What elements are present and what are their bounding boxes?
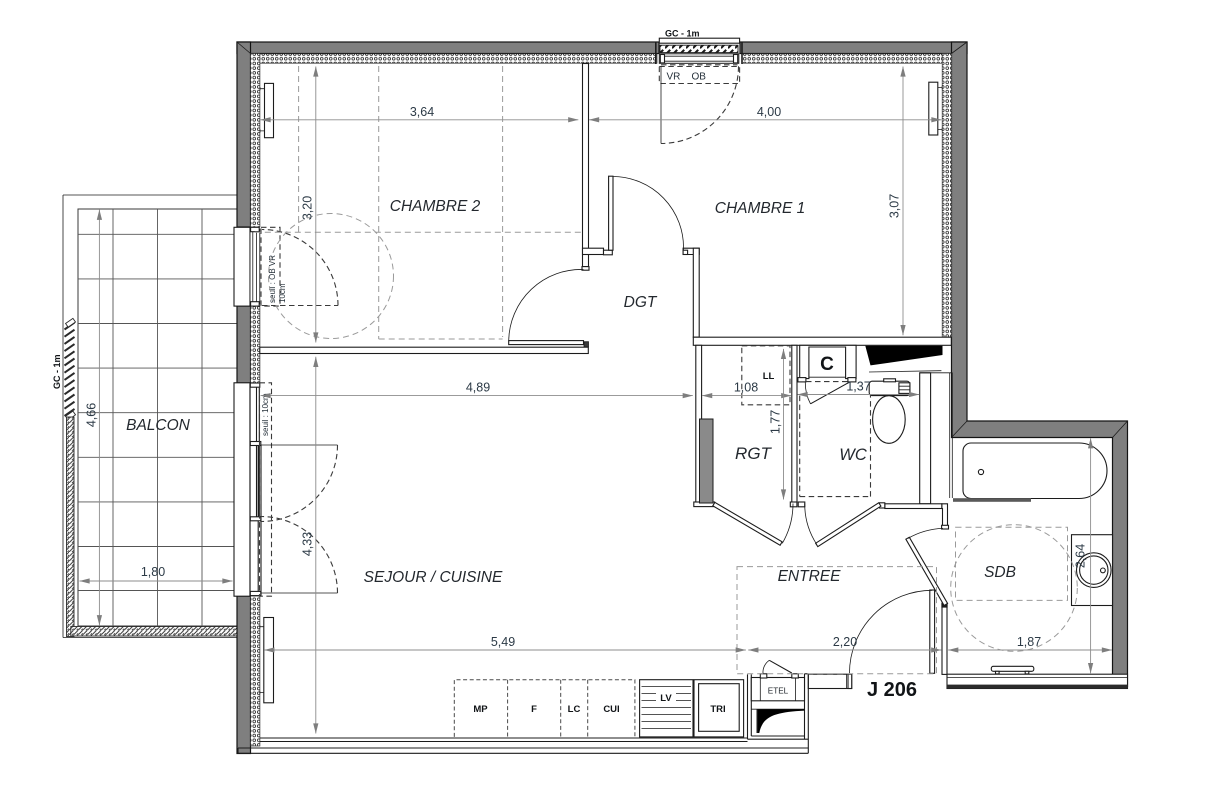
svg-text:3,64: 3,64 (410, 105, 434, 119)
svg-text:SEJOUR / CUISINE: SEJOUR / CUISINE (364, 569, 503, 586)
svg-text:F: F (531, 704, 537, 715)
svg-text:RGT: RGT (735, 444, 773, 463)
svg-text:10cm: 10cm (278, 283, 287, 303)
svg-text:LV: LV (660, 693, 672, 704)
svg-text:1,77: 1,77 (769, 410, 783, 434)
svg-text:WC: WC (839, 446, 867, 464)
svg-text:4,33: 4,33 (301, 532, 315, 556)
svg-text:1,37: 1,37 (846, 380, 870, 394)
svg-text:4,00: 4,00 (757, 105, 781, 119)
svg-text:4,66: 4,66 (85, 403, 99, 427)
svg-text:1,08: 1,08 (734, 381, 758, 395)
svg-text:TRI: TRI (710, 704, 725, 715)
svg-text:ENTREE: ENTREE (778, 568, 842, 585)
svg-text:VR: VR (667, 71, 681, 82)
svg-text:C: C (820, 354, 834, 375)
svg-text:GC - 1m: GC - 1m (665, 29, 700, 39)
svg-text:BALCON: BALCON (126, 417, 191, 434)
svg-text:1,87: 1,87 (1017, 635, 1041, 649)
svg-text:SDB: SDB (984, 564, 1016, 581)
svg-text:GC - 1m: GC - 1m (52, 354, 62, 389)
svg-text:4,89: 4,89 (466, 381, 490, 395)
svg-text:LL: LL (763, 371, 775, 382)
svg-text:MP: MP (473, 704, 488, 715)
svg-text:LC: LC (568, 704, 581, 715)
svg-text:seuil : 10cm: seuil : 10cm (261, 393, 270, 436)
svg-text:5,49: 5,49 (491, 635, 515, 649)
svg-text:3,20: 3,20 (301, 196, 315, 220)
svg-text:2,20: 2,20 (833, 635, 857, 649)
svg-text:OB: OB (692, 71, 707, 82)
svg-text:ETEL: ETEL (768, 687, 789, 696)
svg-text:CHAMBRE 2: CHAMBRE 2 (390, 198, 481, 215)
svg-text:2,64: 2,64 (1074, 544, 1088, 568)
svg-text:CUI: CUI (603, 704, 619, 715)
svg-text:CHAMBRE 1: CHAMBRE 1 (715, 200, 805, 217)
svg-text:J 206: J 206 (867, 679, 917, 701)
svg-text:3,07: 3,07 (888, 194, 902, 218)
svg-text:1,80: 1,80 (141, 565, 165, 579)
svg-text:DGT: DGT (624, 294, 658, 311)
svg-text:seuil : OB VR: seuil : OB VR (268, 255, 277, 303)
